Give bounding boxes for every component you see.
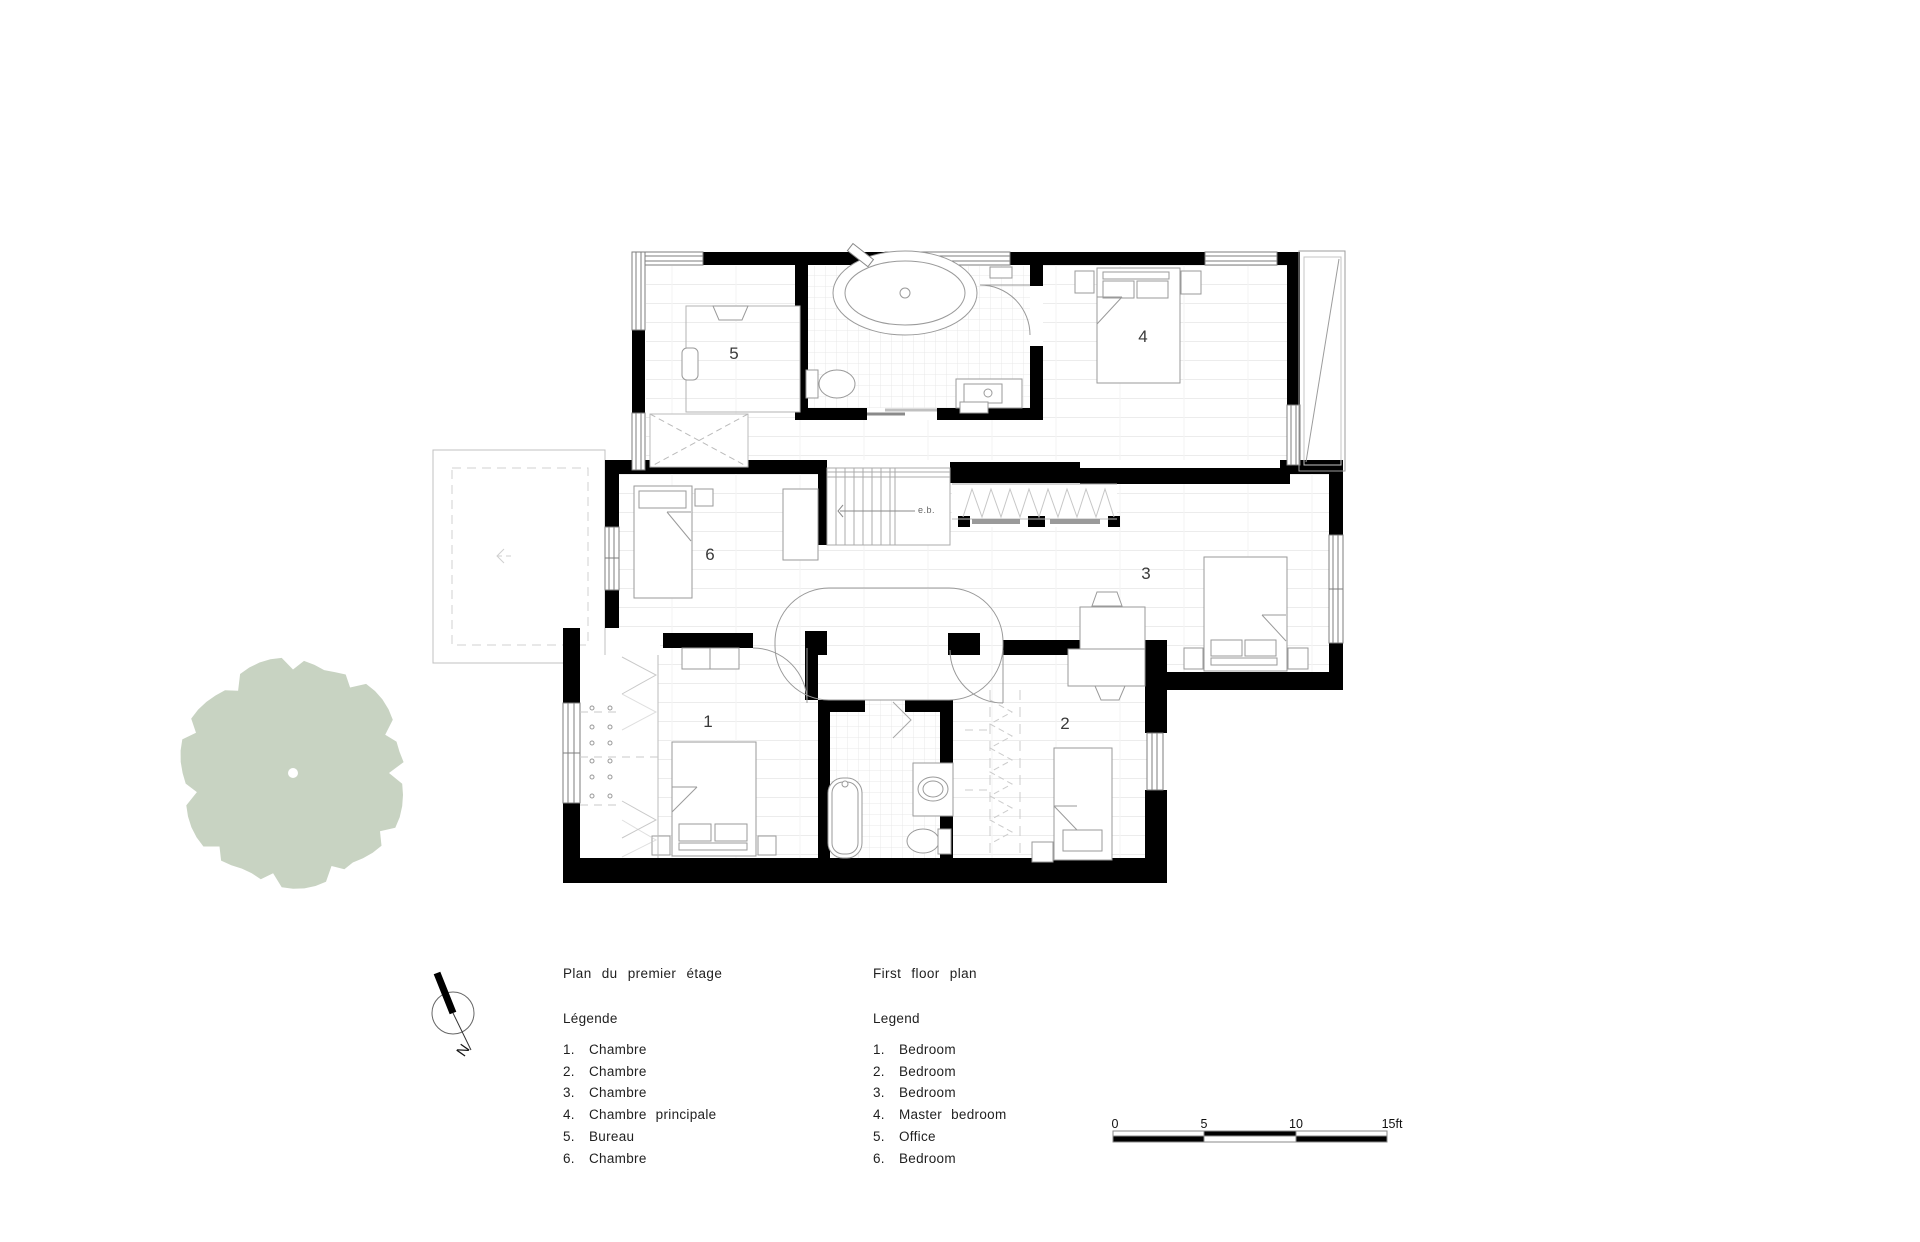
scale-tick-0: 0 (1095, 1117, 1135, 1131)
room-label-2: 2 (1052, 714, 1078, 734)
sink-icon (913, 763, 953, 816)
legend-fr: Légende 1.Chambre 2.Chambre 3.Chambre 4.… (563, 1008, 716, 1170)
legend-item: 2.Chambre (563, 1061, 716, 1083)
legend-item: 6.Bedroom (873, 1148, 1007, 1170)
room-label-6: 6 (697, 545, 723, 565)
balcony (1299, 251, 1345, 471)
legend-item: 3.Chambre (563, 1082, 716, 1104)
scale-tick-5: 5 (1184, 1117, 1224, 1131)
scale-tick-10: 10 (1276, 1117, 1316, 1131)
north-arrow-icon (432, 972, 474, 1050)
bathtub2-icon (828, 778, 862, 858)
legend-item: 6.Chambre (563, 1148, 716, 1170)
legend-item: 4.Chambre principale (563, 1104, 716, 1126)
legend-fr-heading: Légende (563, 1008, 716, 1030)
legend-item: 4.Master bedroom (873, 1104, 1007, 1126)
legend-en-heading: Legend (873, 1008, 1007, 1030)
legend-item: 3.Bedroom (873, 1082, 1007, 1104)
legend-en: Legend 1.Bedroom 2.Bedroom 3.Bedroom 4.M… (873, 1008, 1007, 1170)
room-label-3: 3 (1133, 564, 1159, 584)
legend-item: 2.Bedroom (873, 1061, 1007, 1083)
stair-label: e.b. (918, 505, 935, 515)
toilet-icon (806, 370, 855, 398)
plan-title-en: First floor plan (873, 966, 977, 981)
legend-item: 5.Office (873, 1126, 1007, 1148)
plan-title-fr: Plan du premier étage (563, 966, 722, 981)
room-label-5: 5 (721, 344, 747, 364)
tree-icon (181, 658, 404, 889)
scale-bar (1113, 1131, 1387, 1142)
room-label-4: 4 (1130, 327, 1156, 347)
legend-item: 5.Bureau (563, 1126, 716, 1148)
room-label-1: 1 (695, 712, 721, 732)
toilet2-icon (907, 829, 951, 854)
legend-item: 1.Chambre (563, 1039, 716, 1061)
scale-tick-15ft: 15ft (1372, 1117, 1412, 1131)
legend-item: 1.Bedroom (873, 1039, 1007, 1061)
